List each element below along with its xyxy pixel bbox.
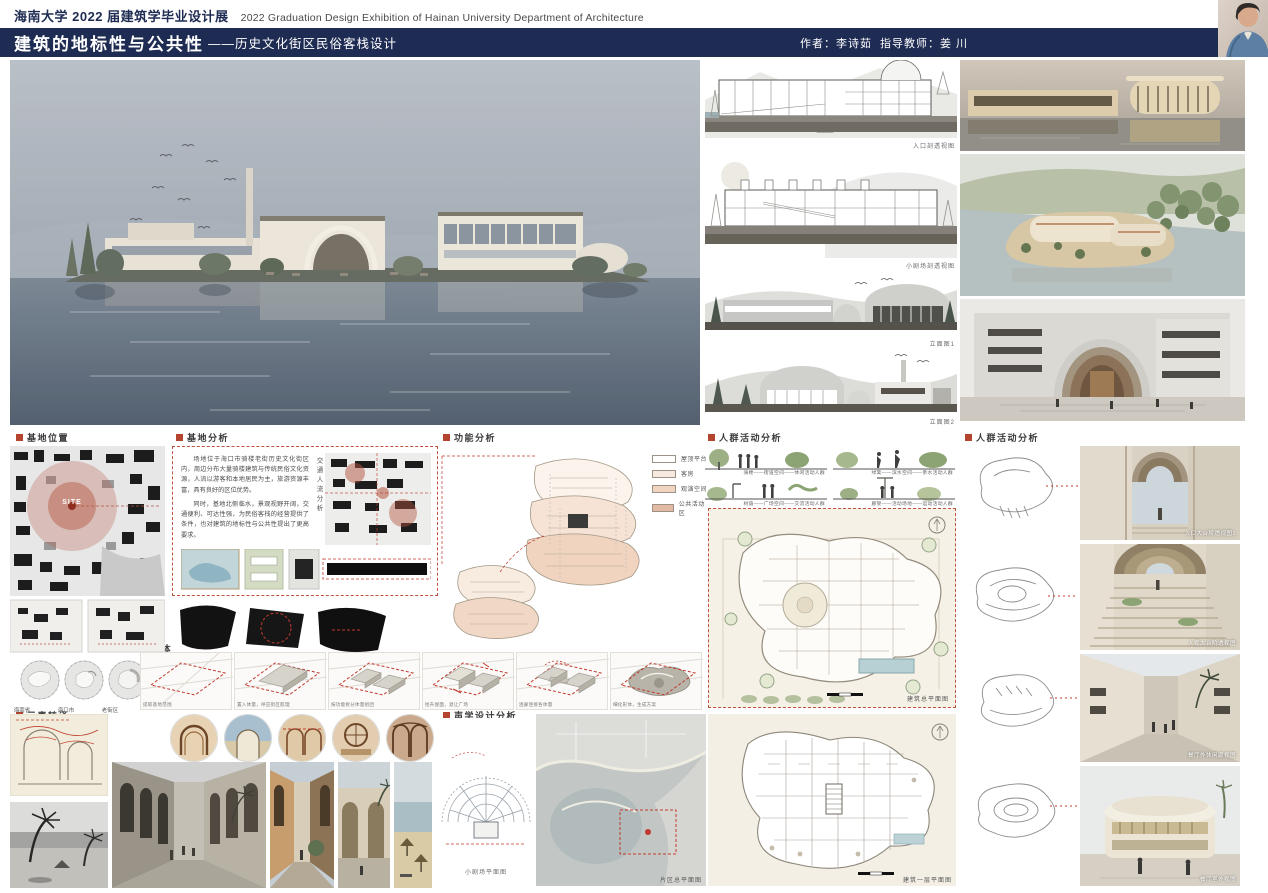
render-waterfront-dusk bbox=[960, 60, 1245, 151]
project-title: 建筑的地标性与公共性 bbox=[14, 30, 204, 55]
site-plan-panel: 建筑总平面图 bbox=[708, 508, 956, 708]
zoning-mini-maps bbox=[10, 598, 165, 654]
area-plan-image bbox=[536, 714, 706, 886]
site-analysis-strip bbox=[181, 549, 431, 591]
site-analysis-text: 场地位于海口市骑楼老街历史文化街区内，周边分布大量骑楼建筑与传统民俗文化资源，人… bbox=[181, 455, 309, 545]
figure-ground-fragments bbox=[172, 600, 396, 656]
figure-ground-fragments-image bbox=[172, 600, 396, 656]
massing-step-6: 细化形体，生成方案 bbox=[610, 652, 702, 710]
red-square-icon bbox=[443, 434, 450, 441]
section-header-function-analysis: 功能分析 bbox=[443, 431, 496, 444]
section-drawing-theater: 小剧场剖透视图 bbox=[705, 152, 957, 272]
site-analysis-panel: 场地位于海口市骑楼老街历史文化街区内，周边分布大量骑楼建筑与传统民俗文化资源，人… bbox=[172, 446, 438, 596]
project-subtitle: ——历史文化街区民俗客栈设计 bbox=[208, 33, 397, 52]
legend-label: 观演空间 bbox=[681, 484, 707, 493]
render-caption-3: 餐厅外休闲廊视图 bbox=[1188, 751, 1236, 759]
legend-row: 观演空间 bbox=[652, 484, 708, 493]
exhibition-title-en: 2022 Graduation Design Exhibition of Hai… bbox=[241, 12, 644, 24]
circle-label-district: 老街区 bbox=[88, 706, 132, 714]
photo-beach-bw-image bbox=[10, 802, 108, 888]
site-analysis-strip-image bbox=[181, 549, 431, 591]
massing-caption: 抬升屋面，退让广场 bbox=[425, 702, 468, 708]
axon-wireframe-image bbox=[960, 446, 1078, 882]
author-photo bbox=[1218, 0, 1268, 57]
legend-swatch bbox=[652, 504, 674, 512]
area-plan-figure: 片区总平面图 bbox=[536, 714, 706, 886]
massing-diagram-row: 提取基地范围 置入体量，呼应街区肌理 按功能拆分体量组团 bbox=[140, 652, 702, 710]
section-drawing-entrance: 入口剖透视图 bbox=[705, 60, 957, 152]
massing-step-3-image bbox=[329, 653, 421, 703]
theater-plan-figure: 小剧场平面图 bbox=[440, 718, 532, 876]
massing-caption: 连廊连接各体量 bbox=[519, 702, 553, 708]
section-header-site-analysis: 基地分析 bbox=[176, 431, 229, 444]
arch-photo-circle-2 bbox=[224, 714, 272, 762]
author-label: 作者：李诗茹 bbox=[800, 35, 872, 51]
city-map-image: SITE bbox=[10, 446, 165, 596]
massing-caption: 提取基地范围 bbox=[143, 702, 172, 708]
photo-arcade-street-image bbox=[112, 762, 266, 888]
crowd-caption-2: 树荫——广场空间——交流活动人群 bbox=[743, 500, 825, 507]
elevation-drawing-2: 立面图2 bbox=[705, 352, 957, 426]
legend-label: 屋顶平台 bbox=[681, 454, 707, 463]
photo-old-street-2 bbox=[338, 762, 390, 888]
arch-photo-5-image bbox=[387, 715, 433, 761]
elevation-drawing-1-image bbox=[705, 274, 957, 340]
massing-step-5: 连廊连接各体量 bbox=[516, 652, 608, 710]
arch-photo-circle-5 bbox=[386, 714, 434, 762]
hand-sketch-panel bbox=[10, 714, 108, 796]
zoning-mini-maps-image bbox=[10, 598, 165, 654]
city-figure-ground-map: SITE bbox=[10, 446, 165, 596]
photo-old-street-1-image bbox=[270, 762, 334, 888]
theater-plan-image bbox=[440, 718, 532, 864]
legend-row: 客房 bbox=[652, 469, 708, 478]
site-analysis-paragraph-1: 场地位于海口市骑楼老街历史文化街区内，周边分布大量骑楼建筑与传统民俗文化资源，人… bbox=[181, 455, 309, 496]
red-square-icon bbox=[708, 434, 715, 441]
render-dining-lane-image bbox=[1080, 654, 1240, 762]
render-restaurant-exterior: 餐厅室外视图 bbox=[1080, 766, 1240, 886]
floor-plan-caption: 建筑一层平面图 bbox=[903, 875, 952, 884]
function-axon-image bbox=[440, 444, 652, 656]
function-legend: 屋顶平台 客房 观演空间 公共活动区 bbox=[652, 454, 708, 523]
render-dining-lane: 餐厅外休闲廊视图 bbox=[1080, 654, 1240, 762]
photo-beach-umbrellas bbox=[394, 762, 432, 888]
hero-render-image bbox=[10, 60, 700, 425]
section-header-crowd-right: 人群活动分析 bbox=[965, 431, 1039, 444]
arch-photo-3-image bbox=[279, 715, 325, 761]
legend-label: 公共活动区 bbox=[679, 499, 708, 517]
legend-row: 公共活动区 bbox=[652, 499, 708, 517]
axon-wireframe-column bbox=[960, 446, 1078, 882]
header: 海南大学 2022 届建筑学毕业设计展 2022 Graduation Desi… bbox=[14, 6, 644, 25]
render-entry-stair-1-image bbox=[1080, 446, 1240, 540]
render-restaurant-exterior-image bbox=[1080, 766, 1240, 886]
render-caption-4: 餐厅室外视图 bbox=[1200, 875, 1236, 883]
title-bar: 建筑的地标性与公共性 ——历史文化街区民俗客栈设计 作者：李诗茹 指导教师：姜 … bbox=[0, 28, 1218, 57]
elevation-drawing-2-image bbox=[705, 352, 957, 424]
legend-swatch bbox=[652, 470, 676, 478]
photo-arcade-street bbox=[112, 762, 266, 888]
massing-step-6-image bbox=[611, 653, 703, 703]
author-photo-image bbox=[1218, 0, 1268, 57]
floor-plan-figure: 建筑一层平面图 bbox=[708, 714, 956, 886]
location-scale-circles bbox=[18, 660, 150, 704]
massing-step-5-image bbox=[517, 653, 609, 703]
circle-label-city: 海口市 bbox=[44, 706, 88, 714]
site-label: SITE bbox=[62, 499, 82, 506]
massing-caption: 按功能拆分体量组团 bbox=[331, 702, 374, 708]
legend-label: 客房 bbox=[681, 469, 694, 478]
crowd-caption-4: 廊架——活动场地——运动活动人群 bbox=[871, 500, 953, 507]
section-header-label: 功能分析 bbox=[454, 431, 496, 444]
render-aerial-lagoon bbox=[960, 154, 1245, 296]
site-plan-caption: 建筑总平面图 bbox=[907, 694, 949, 703]
massing-step-2: 置入体量，呼应街区肌理 bbox=[234, 652, 326, 710]
photo-old-street-1 bbox=[270, 762, 334, 888]
render-caption-2: 人视大台阶透视图 bbox=[1188, 639, 1236, 647]
render-arch-facade-image bbox=[960, 299, 1245, 421]
section-header-crowd-left: 人群活动分析 bbox=[708, 431, 782, 444]
arch-photo-circle-4 bbox=[332, 714, 380, 762]
render-aerial-lagoon-image bbox=[960, 154, 1245, 296]
site-analysis-paragraph-2: 同时，基地北侧临水，景观视野开阔，交通便利、可达性强，为民俗客栈的经营提供了条件… bbox=[181, 500, 309, 541]
massing-step-1-image bbox=[141, 653, 233, 703]
red-square-icon bbox=[16, 434, 23, 441]
massing-step-4-image bbox=[423, 653, 515, 703]
render-caption-1: 入口大台阶透视图1 bbox=[1184, 529, 1236, 537]
massing-caption: 细化形体，生成方案 bbox=[613, 702, 656, 708]
section-header-label: 人群活动分析 bbox=[719, 431, 782, 444]
traffic-analysis-map bbox=[325, 453, 431, 545]
arch-photo-1-image bbox=[171, 715, 217, 761]
crowd-caption-3: 绿篱——滨水空间——亲水活动人群 bbox=[871, 469, 953, 476]
section-header-label: 基地分析 bbox=[187, 431, 229, 444]
section1-caption: 入口剖透视图 bbox=[913, 141, 955, 150]
section2-caption: 小剧场剖透视图 bbox=[906, 261, 955, 270]
advisor-label: 指导教师：姜 川 bbox=[880, 35, 968, 51]
render-arch-facade bbox=[960, 299, 1245, 421]
photo-beach-umbrellas-image bbox=[394, 762, 432, 888]
photo-old-street-2-image bbox=[338, 762, 390, 888]
traffic-flow-vertical-label: 交通人流分析 bbox=[313, 457, 323, 514]
elevation-drawing-1: 立面图1 bbox=[705, 274, 957, 350]
elevation2-caption: 立面图2 bbox=[930, 417, 955, 426]
massing-caption: 置入体量，呼应街区肌理 bbox=[237, 702, 290, 708]
section-header-label: 基地位置 bbox=[27, 431, 69, 444]
area-plan-caption: 片区总平面图 bbox=[660, 875, 702, 884]
render-entry-stair-2-image bbox=[1080, 544, 1240, 650]
legend-row: 屋顶平台 bbox=[652, 454, 708, 463]
render-entry-stair-2: 人视大台阶透视图 bbox=[1080, 544, 1240, 650]
theater-plan-caption: 小剧场平面图 bbox=[465, 867, 507, 876]
function-axon-diagram bbox=[440, 444, 652, 656]
hero-render bbox=[10, 60, 700, 425]
site-plan-image bbox=[709, 509, 955, 707]
traffic-analysis-map-image bbox=[325, 453, 431, 545]
legend-swatch bbox=[652, 455, 676, 463]
arch-photo-2-image bbox=[225, 715, 271, 761]
render-entry-stair-1: 入口大台阶透视图1 bbox=[1080, 446, 1240, 540]
elevation1-caption: 立面图1 bbox=[930, 339, 955, 348]
floor-plan-image bbox=[708, 714, 956, 886]
massing-step-2-image bbox=[235, 653, 327, 703]
circle-label-province: 海南省 bbox=[0, 706, 44, 714]
crowd-caption-1: 骑楼——街道空间——休闲活动人群 bbox=[743, 469, 825, 476]
section-header-site-location: 基地位置 bbox=[16, 431, 69, 444]
red-square-icon bbox=[176, 434, 183, 441]
section-drawing-entrance-image bbox=[705, 60, 957, 138]
massing-step-4: 抬升屋面，退让广场 bbox=[422, 652, 514, 710]
crowd-vignette-group-2: 绿篱——滨水空间——亲水活动人群 廊架——活动场地——运动活动人群 bbox=[833, 444, 955, 506]
massing-step-1: 提取基地范围 bbox=[140, 652, 232, 710]
legend-swatch bbox=[652, 485, 676, 493]
massing-step-3: 按功能拆分体量组团 bbox=[328, 652, 420, 710]
photo-beach-bw bbox=[10, 802, 108, 888]
location-scale-circles-image bbox=[18, 660, 150, 704]
arch-photo-circle-3 bbox=[278, 714, 326, 762]
arch-photo-4-image bbox=[333, 715, 379, 761]
section-drawing-theater-image bbox=[705, 152, 957, 258]
exhibition-poster: 海南大学 2022 届建筑学毕业设计展 2022 Graduation Desi… bbox=[0, 0, 1268, 893]
arch-photo-circle-1 bbox=[170, 714, 218, 762]
render-waterfront-dusk-image bbox=[960, 60, 1245, 151]
section-header-label: 人群活动分析 bbox=[976, 431, 1039, 444]
exhibition-title-cn: 海南大学 2022 届建筑学毕业设计展 bbox=[14, 6, 229, 25]
crowd-vignette-group-1: 骑楼——街道空间——休闲活动人群 树荫——广场空间——交流活动人群 bbox=[705, 444, 827, 506]
hand-sketch-image bbox=[10, 714, 108, 796]
red-square-icon bbox=[965, 434, 972, 441]
